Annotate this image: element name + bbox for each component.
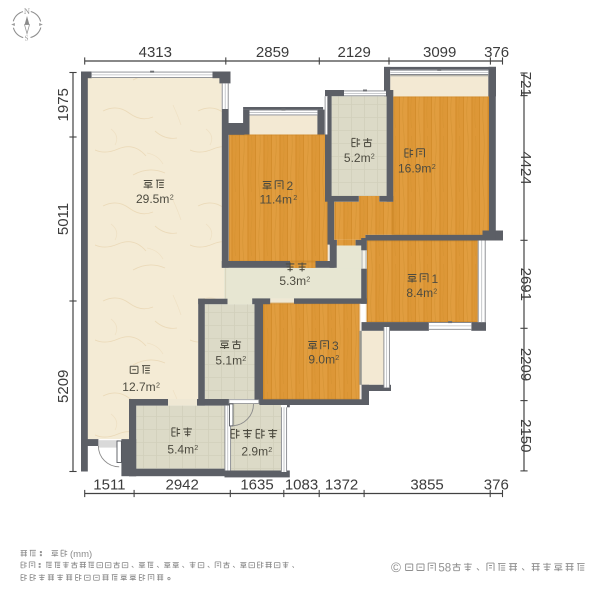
svg-text:16.9m: 16.9m	[398, 162, 431, 176]
svg-text:2691: 2691	[517, 268, 534, 301]
svg-text:4424: 4424	[517, 151, 534, 184]
svg-text:2: 2	[371, 151, 375, 160]
svg-text:9.0m: 9.0m	[308, 353, 335, 367]
svg-text:5.1m: 5.1m	[215, 354, 242, 368]
svg-text:11.4m: 11.4m	[260, 193, 292, 207]
svg-text:1083: 1083	[285, 477, 318, 494]
svg-text:1511: 1511	[93, 477, 125, 494]
svg-text:2: 2	[194, 443, 198, 452]
svg-text:1: 1	[432, 272, 439, 286]
svg-text:3: 3	[332, 339, 339, 353]
svg-text:8.4m: 8.4m	[406, 286, 433, 300]
svg-text:2: 2	[156, 380, 160, 389]
svg-text:2: 2	[432, 162, 436, 171]
svg-text:2: 2	[268, 445, 272, 454]
svg-text:2150: 2150	[517, 419, 534, 452]
svg-text:3099: 3099	[423, 44, 456, 61]
svg-text:2859: 2859	[256, 44, 289, 61]
svg-text:29.5m: 29.5m	[136, 192, 169, 206]
svg-text:58: 58	[438, 563, 451, 575]
svg-text:1635: 1635	[240, 477, 273, 494]
svg-text:12.7m: 12.7m	[122, 380, 155, 394]
svg-text:2: 2	[335, 353, 339, 362]
svg-text:N: N	[24, 6, 30, 16]
svg-text:2: 2	[293, 193, 297, 202]
svg-text:2.9m: 2.9m	[241, 445, 268, 459]
svg-text:1372: 1372	[325, 477, 358, 494]
svg-text:S: S	[25, 35, 29, 43]
svg-text:5.4m: 5.4m	[167, 443, 194, 457]
svg-text:4313: 4313	[139, 44, 172, 61]
svg-text:2: 2	[242, 354, 246, 363]
svg-text:721: 721	[517, 72, 534, 97]
svg-text:5.2m: 5.2m	[344, 151, 371, 165]
svg-text:376: 376	[484, 477, 509, 494]
svg-text:5.3m: 5.3m	[279, 274, 306, 288]
svg-text:5011: 5011	[55, 203, 72, 235]
svg-text:2129: 2129	[338, 44, 371, 61]
svg-text:©: ©	[391, 560, 401, 575]
svg-text:2942: 2942	[166, 477, 199, 494]
svg-text:2209: 2209	[517, 348, 534, 381]
svg-text:2: 2	[433, 286, 437, 295]
svg-text:376: 376	[484, 44, 509, 61]
svg-text:2: 2	[287, 179, 294, 193]
svg-text:5209: 5209	[55, 370, 72, 403]
svg-text:1975: 1975	[55, 88, 72, 121]
svg-text:2: 2	[170, 192, 174, 201]
svg-text:(mm): (mm)	[70, 549, 92, 560]
svg-text:2: 2	[306, 274, 310, 283]
svg-text:3855: 3855	[410, 477, 443, 494]
